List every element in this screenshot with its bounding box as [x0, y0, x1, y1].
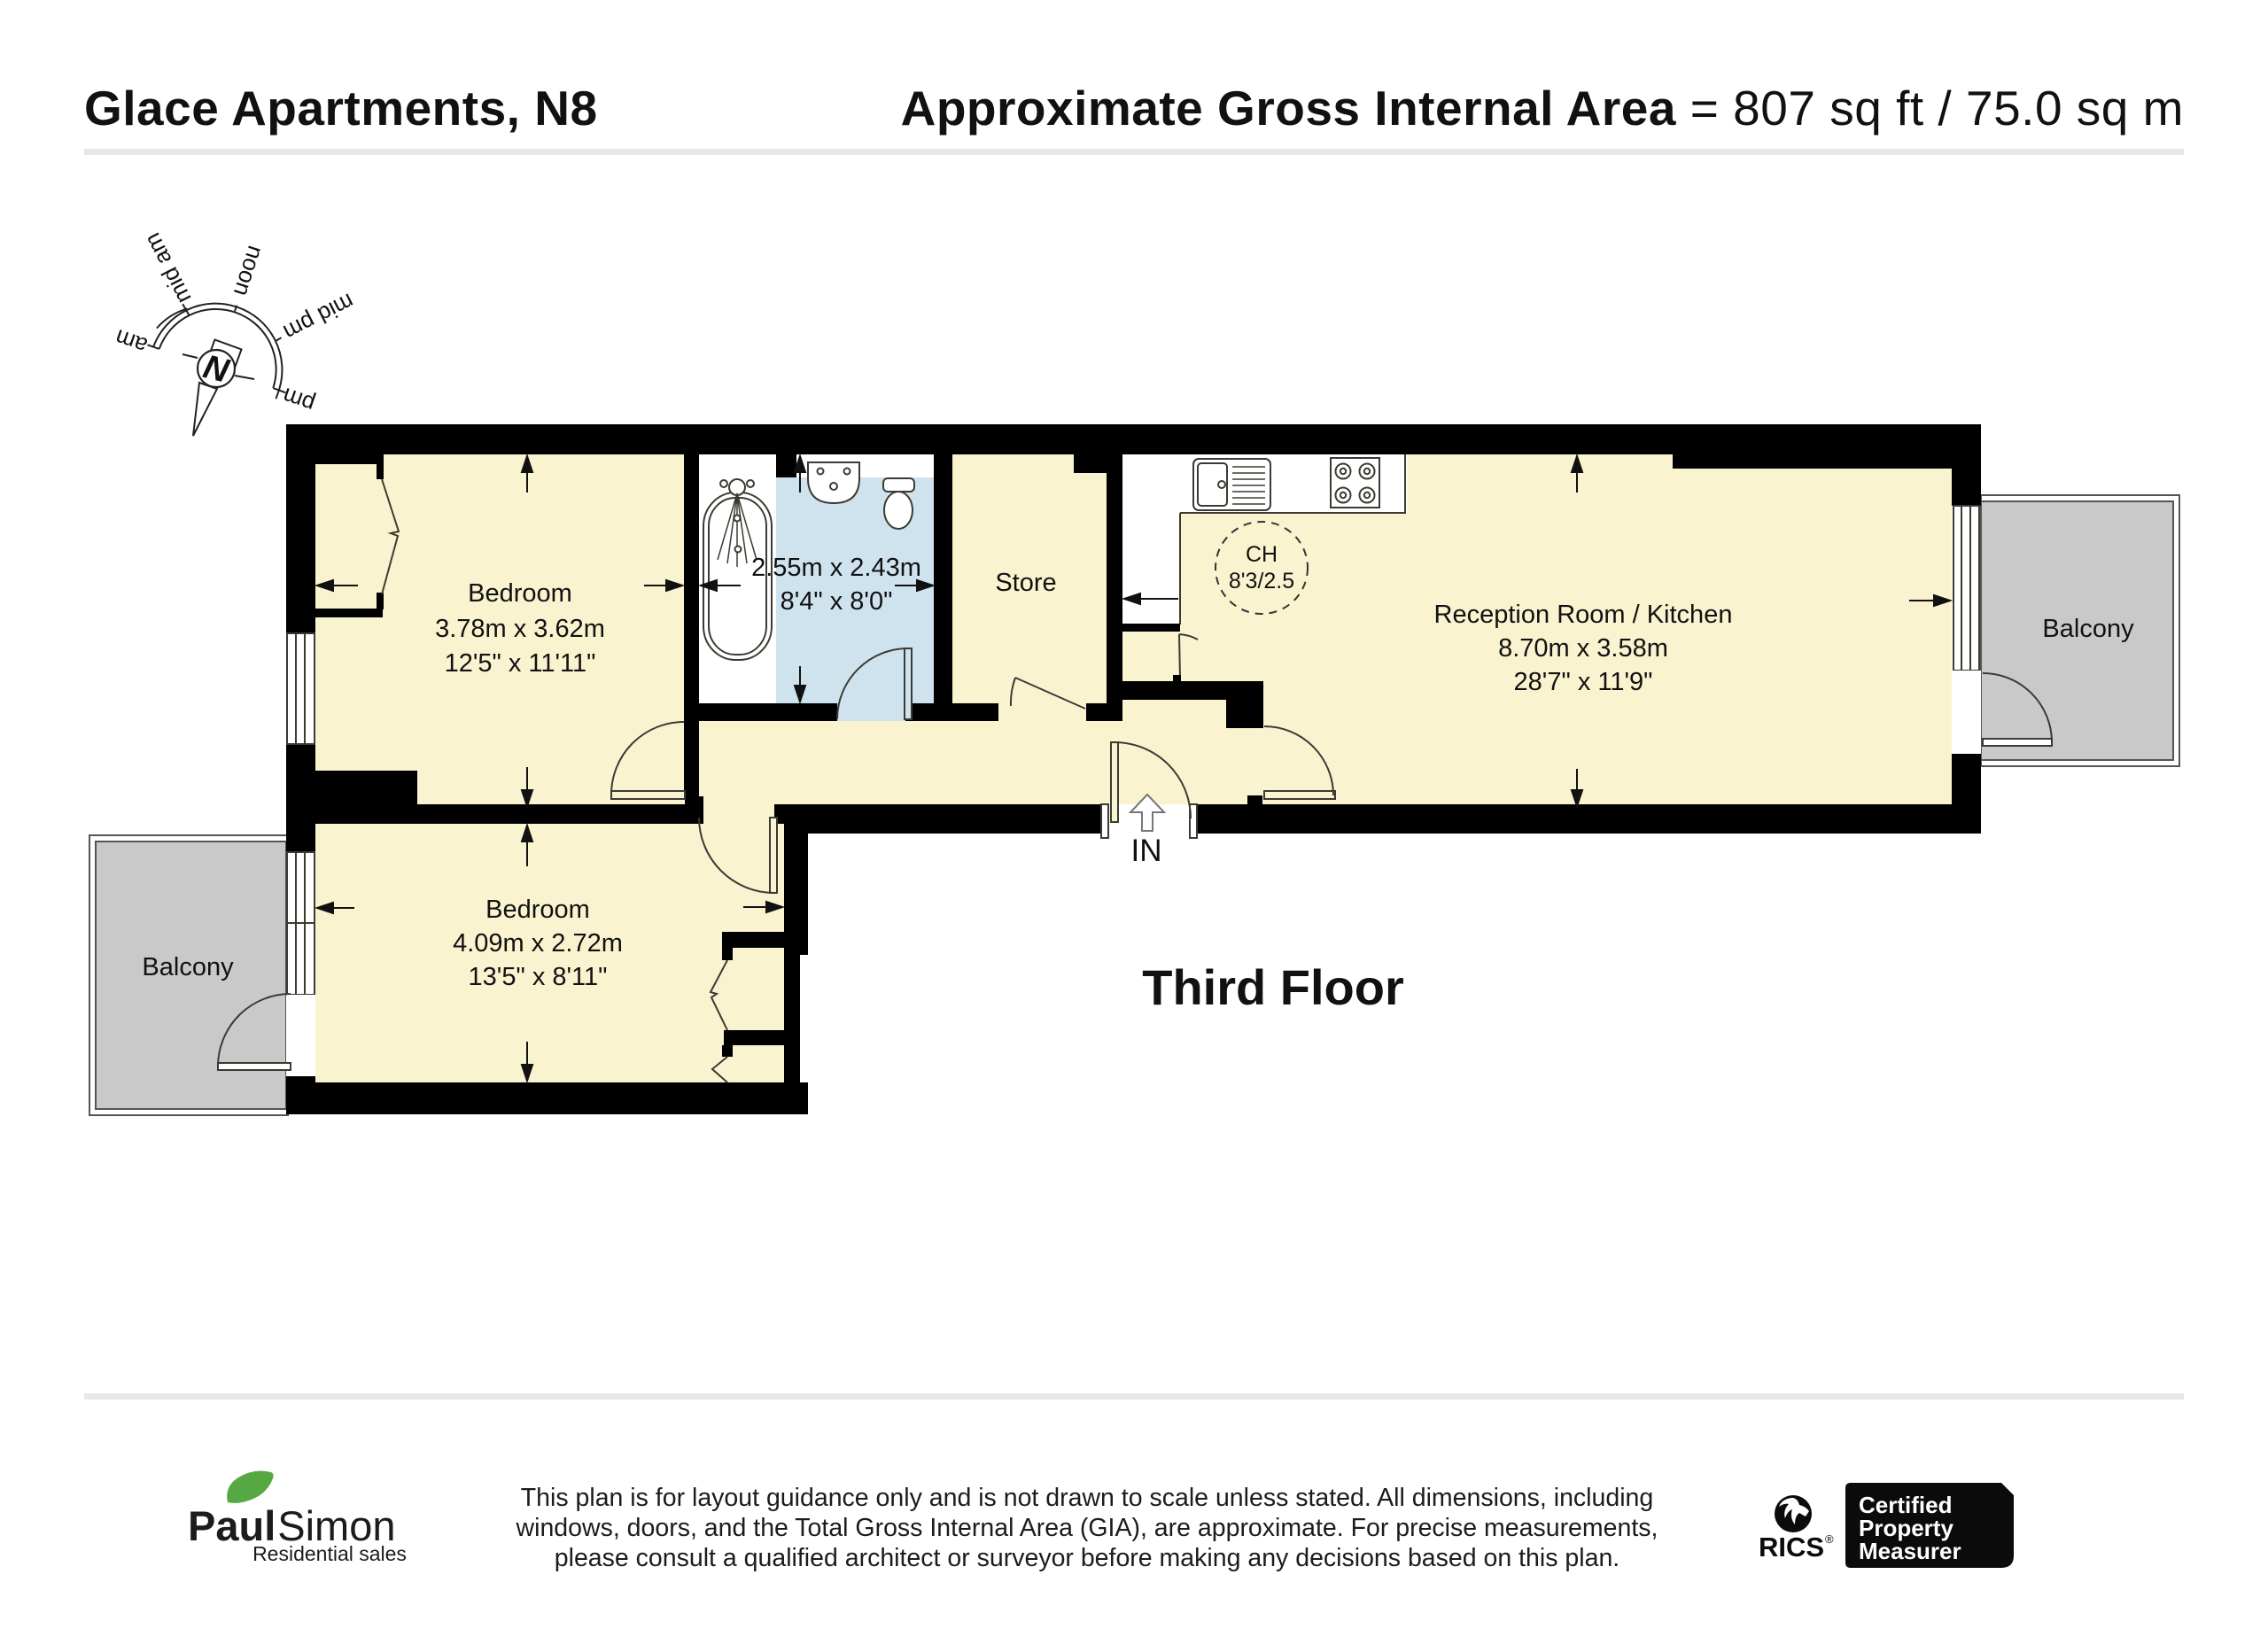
svg-text:Bedroom: Bedroom — [485, 896, 590, 924]
svg-text:8'4" x 8'0": 8'4" x 8'0" — [781, 587, 893, 616]
svg-text:IN: IN — [1131, 834, 1162, 868]
svg-text:®: ® — [1825, 1532, 1834, 1546]
svg-text:8.70m x 3.58m: 8.70m x 3.58m — [1498, 634, 1668, 663]
svg-text:3.78m x 3.62m: 3.78m x 3.62m — [435, 615, 605, 643]
svg-text:Approximate Gross Internal Are: Approximate Gross Internal Area = 807 sq… — [901, 81, 2184, 136]
svg-text:28'7" x 11'9": 28'7" x 11'9" — [1514, 668, 1653, 696]
svg-text:Glace Apartments, N8: Glace Apartments, N8 — [84, 81, 598, 136]
svg-text:Measurer: Measurer — [1859, 1538, 1961, 1564]
svg-text:This plan is for layout guidan: This plan is for layout guidance only an… — [521, 1484, 1653, 1512]
svg-text:windows, doors, and the Total: windows, doors, and the Total Gross Inte… — [516, 1514, 1658, 1542]
svg-text:Store: Store — [995, 569, 1056, 597]
svg-text:Balcony: Balcony — [142, 953, 234, 981]
svg-text:CH: CH — [1246, 542, 1278, 567]
svg-text:12'5" x 11'11": 12'5" x 11'11" — [445, 649, 596, 678]
svg-text:Balcony: Balcony — [2042, 615, 2134, 643]
svg-text:Bedroom: Bedroom — [468, 579, 572, 608]
svg-text:2.55m x 2.43m: 2.55m x 2.43m — [751, 554, 921, 582]
svg-text:13'5" x 8'11": 13'5" x 8'11" — [469, 963, 608, 991]
svg-text:please consult a qualified arc: please consult a qualified architect or … — [555, 1544, 1619, 1572]
svg-text:RICS: RICS — [1759, 1532, 1824, 1563]
svg-text:Residential sales: Residential sales — [252, 1542, 407, 1565]
svg-text:Reception Room / Kitchen: Reception Room / Kitchen — [1434, 601, 1733, 629]
svg-text:Third Floor: Third Floor — [1142, 959, 1404, 1015]
svg-text:4.09m x 2.72m: 4.09m x 2.72m — [453, 929, 623, 958]
svg-text:8'3/2.5: 8'3/2.5 — [1229, 569, 1294, 593]
